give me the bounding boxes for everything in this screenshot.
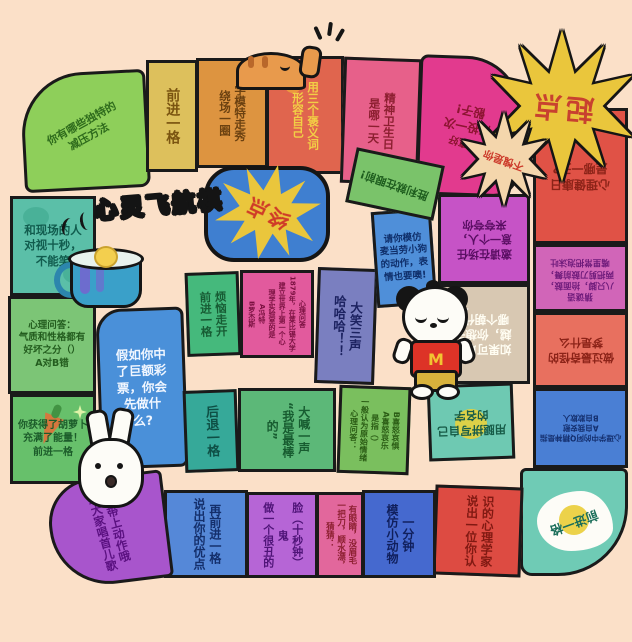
tile-invite-praise: 邀请在场任 意一个人， 来夸夸你 xyxy=(438,194,530,284)
praise-badge-star: 不愧是你 xyxy=(462,112,546,206)
tile-move-backward: 后退一格 xyxy=(183,389,240,473)
tile-quiz-primitive-emotion: 心理问答： 一般认为原始情绪 是指（） A喜怒哀乐 B喜怒哀惧 xyxy=(336,385,411,475)
tile-label: 猜谜语 八只脚，抬面鼓， 两把剪刀鼓前舞， 嘴里常把泡沫吐 xyxy=(546,256,614,301)
tile-move-forward-corner: 前进一格 xyxy=(520,468,628,576)
tile-label: 请你模仿 麦当劳小狗 的动作，表 情也要噢! xyxy=(379,231,430,284)
tile-label: 后退一格 xyxy=(202,405,221,458)
teacup-icon xyxy=(66,240,146,312)
tile-move-forward-top: 前进一格 xyxy=(146,60,198,172)
tile-label: 模仿小动物 一分钟 xyxy=(383,504,415,564)
finish-star-icon: 终点 xyxy=(209,155,327,270)
tile-label: 猜猜： 一把刀，顺水漂， 有眼睛，没眉毛 xyxy=(323,501,357,569)
tile-worries-go-away: 烦恼走开 前进一格 xyxy=(185,271,242,357)
tile-label: 做过最奇怪的 梦是什么 xyxy=(548,335,614,364)
tile-label: 心理学中的阿Q精神是指 A自我安慰 B自欺欺人 xyxy=(540,413,621,443)
tile-label: 精神卫生日 是哪一天 xyxy=(365,92,397,151)
tile-label: 说出你的优点 再前进一格 xyxy=(190,498,222,570)
tile-destress-methods: 你有哪些独特的 减压方法 xyxy=(19,69,151,193)
excitement-mark xyxy=(313,26,322,40)
cat-icon xyxy=(236,44,326,84)
tile-label: 做一个很丑的鬼 脸（十秒钟） xyxy=(260,497,304,573)
tile-label: 用腿拼写自己 的名字 xyxy=(436,406,506,439)
praise-badge-label: 不愧是你 xyxy=(482,145,526,172)
excitement-mark xyxy=(327,22,333,36)
tile-riddle-crab: 猜谜语 八只脚，抬面鼓， 两把剪刀鼓前舞， 嘴里常把泡沫吐 xyxy=(533,244,628,312)
tile-label: 前进一格 xyxy=(163,88,181,144)
tile-say-strengths: 说出你的优点 再前进一格 xyxy=(164,490,248,578)
tile-mimic-animal: 模仿小动物 一分钟 xyxy=(362,490,436,578)
tile-label: 说出一位你认 识的心理学家 xyxy=(461,494,495,567)
tile-label: 学模特走秀 绕场一圈 xyxy=(217,84,247,142)
tile-label: 大喊一声 “我是最棒的” xyxy=(263,393,310,467)
tile-laugh-three-times: 大笑三声 哈哈哈！！ xyxy=(314,267,378,385)
tile-label: 用三个褒义词 形容自己 xyxy=(290,81,320,150)
tile-ugly-face: 做一个很丑的鬼 脸（十秒钟） xyxy=(246,492,318,578)
tile-shout-im-the-best: 大喊一声 “我是最棒的” xyxy=(238,388,336,472)
tile-label: 胜利就在眼前! xyxy=(359,166,431,203)
tile-label: 烦恼走开 前进一格 xyxy=(197,290,229,337)
finish-label: 终点 xyxy=(241,190,294,235)
tile-riddle-fish: 猜猜： 一把刀，顺水漂， 有眼睛，没眉毛 xyxy=(316,492,364,578)
tile-name-psychologist: 说出一位你认 识的心理学家 xyxy=(432,484,523,577)
tile-quiz-ah-q: 心理学中的阿Q精神是指 A自我安慰 B自欺欺人 xyxy=(533,388,628,468)
game-board: 心灵飞航棋 你有哪些独特的 减压方法 前进一格 学模特走秀 绕场一圈 用三个褒义… xyxy=(0,0,632,642)
mcdonalds-dog-icon: M xyxy=(396,280,470,396)
starburst-icon: 不愧是你 xyxy=(462,112,546,206)
rabbit-icon xyxy=(78,410,150,508)
excitement-mark xyxy=(335,28,345,42)
tile-label: 邀请在场任 意一个人， 来夸夸你 xyxy=(457,217,512,261)
tile-label: 心理问答 1879年，在莱比锡大学 建立世界上第一个心 理学实验室的是 A冯特 … xyxy=(247,276,308,351)
tile-label: 你有哪些独特的 减压方法 xyxy=(44,100,125,163)
tile-label: 心理问答： 气质和性格都有 好坏之分（） A对B错 xyxy=(19,320,86,370)
tile-label: 心理问答： 一般认为原始情绪 是指（） A喜怒哀乐 B喜怒哀惧 xyxy=(347,397,402,463)
tile-strange-dream: 做过最奇怪的 梦是什么 xyxy=(533,312,628,388)
tile-label: 大笑三声 哈哈哈！！ xyxy=(328,294,363,358)
tile-quiz-1879-lab: 心理问答 1879年，在莱比锡大学 建立世界上第一个心 理学实验室的是 A冯特 … xyxy=(240,270,314,358)
